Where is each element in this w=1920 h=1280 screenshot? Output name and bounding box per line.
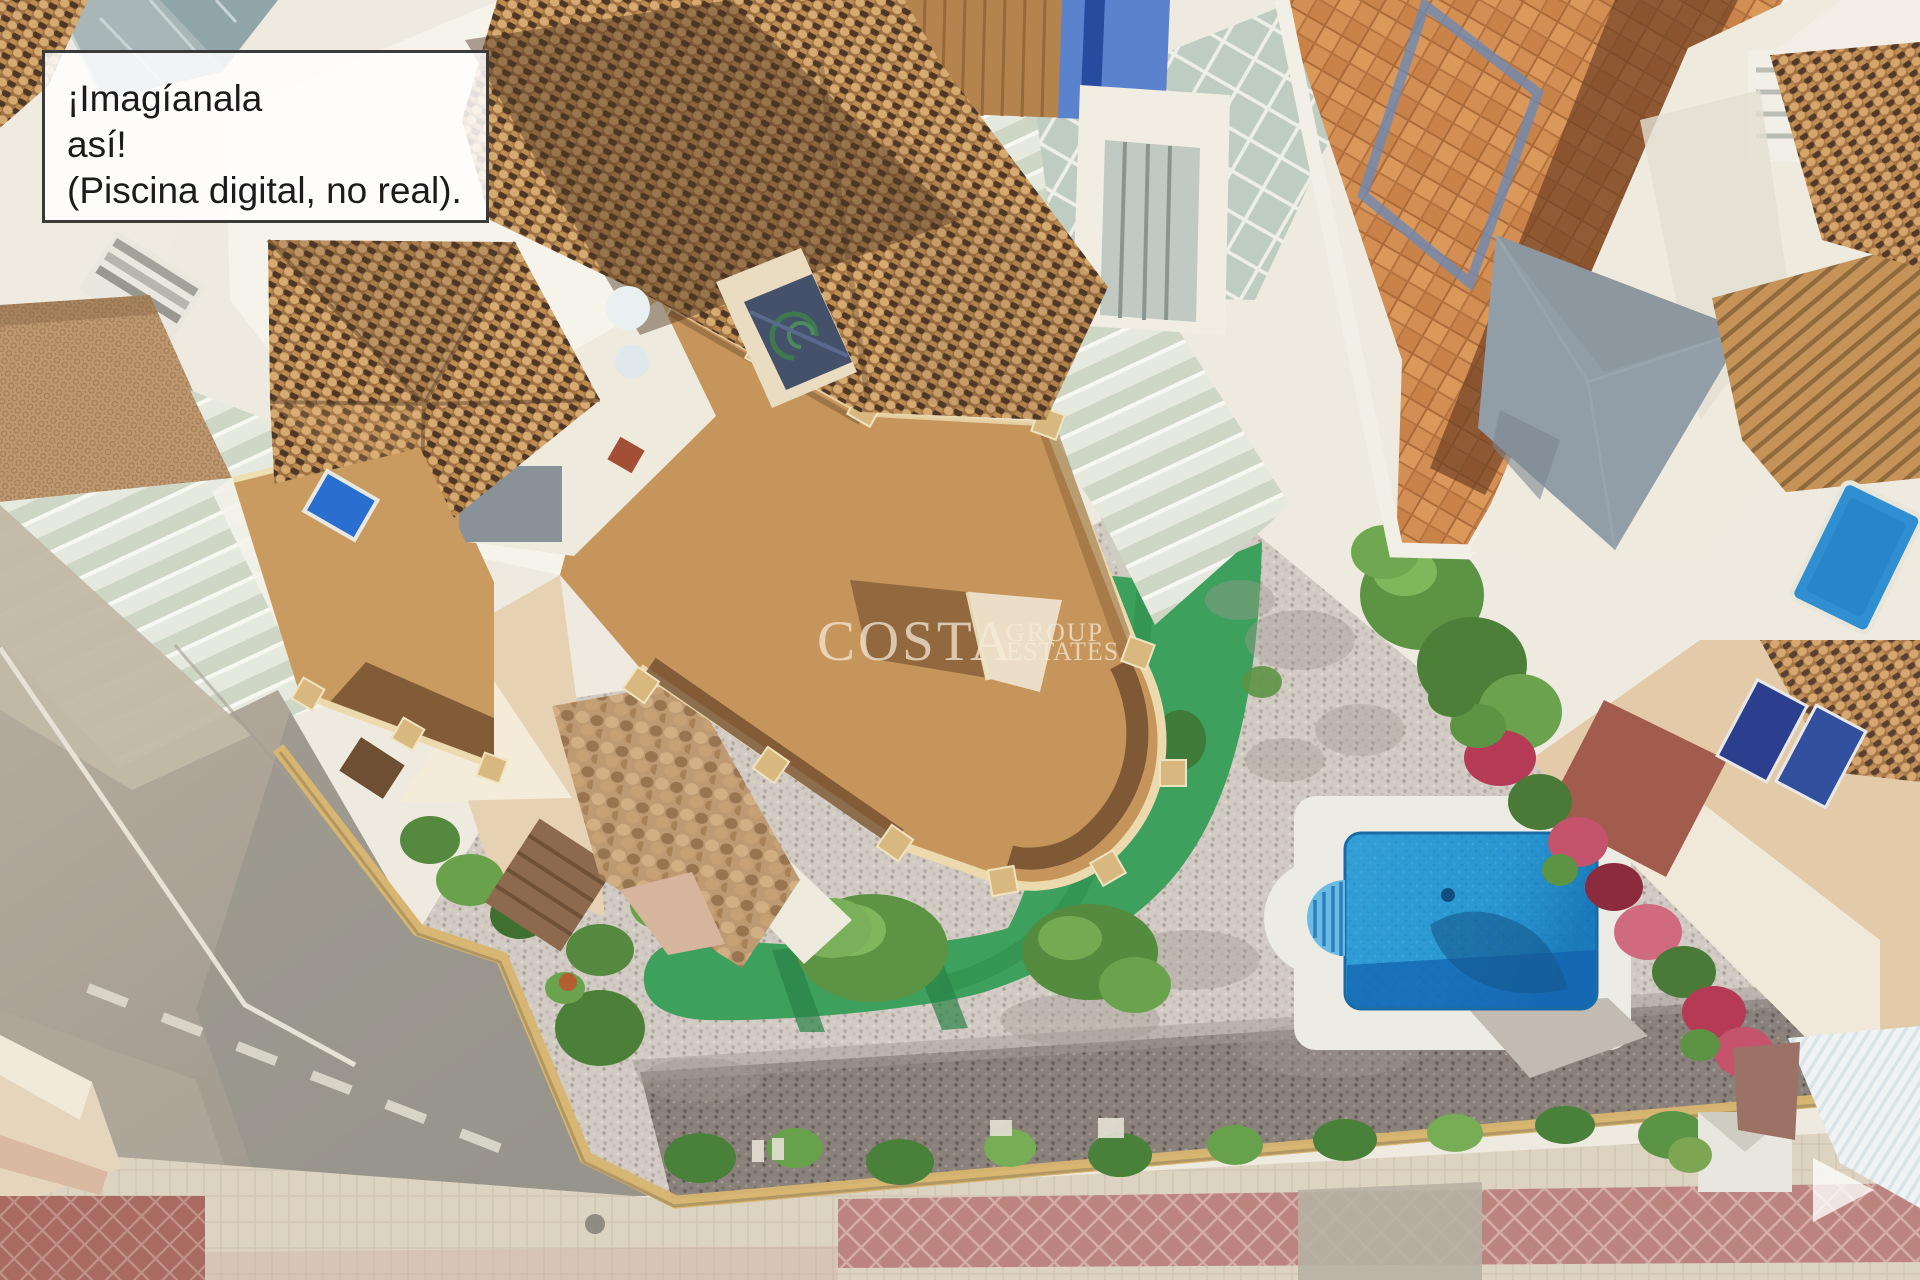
- svg-text:ESTATES: ESTATES: [1006, 637, 1119, 666]
- svg-text:COSTA: COSTA: [817, 610, 1014, 673]
